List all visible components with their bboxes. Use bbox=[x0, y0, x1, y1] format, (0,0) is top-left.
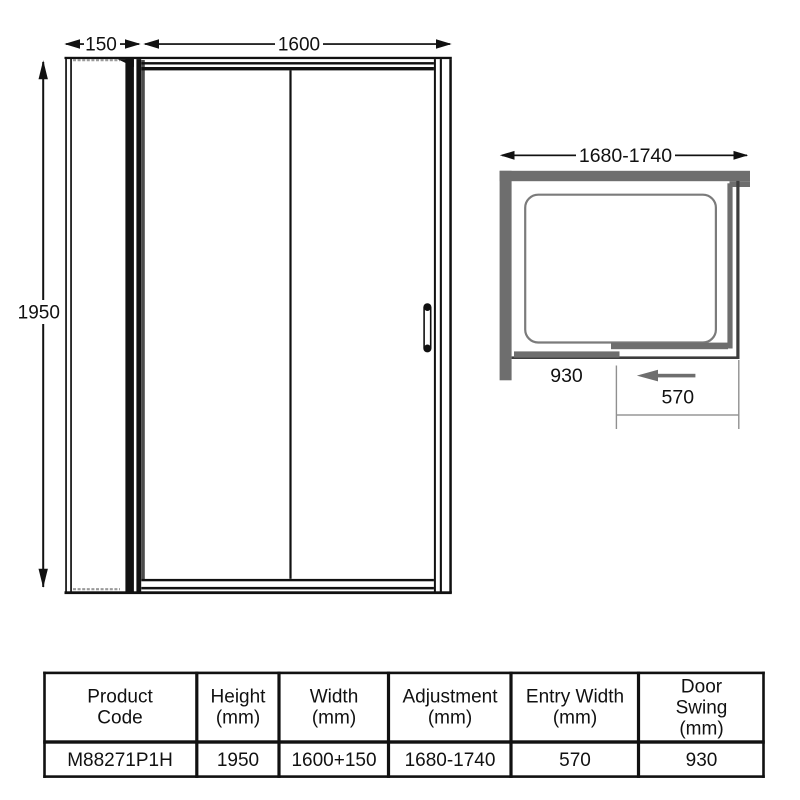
svg-text:Entry Width: Entry Width bbox=[526, 687, 624, 708]
svg-text:1600+150: 1600+150 bbox=[291, 750, 376, 771]
svg-text:Height: Height bbox=[211, 687, 267, 708]
svg-text:570: 570 bbox=[662, 387, 695, 409]
svg-text:1950: 1950 bbox=[217, 750, 259, 771]
svg-text:Adjustment: Adjustment bbox=[402, 687, 498, 708]
svg-text:(mm): (mm) bbox=[679, 719, 723, 740]
svg-text:(mm): (mm) bbox=[312, 708, 356, 729]
svg-text:1680-1740: 1680-1740 bbox=[405, 750, 496, 771]
svg-text:M88271P1H: M88271P1H bbox=[67, 750, 173, 771]
svg-text:1950: 1950 bbox=[18, 303, 60, 324]
svg-text:(mm): (mm) bbox=[216, 708, 260, 729]
svg-text:150: 150 bbox=[85, 35, 117, 56]
svg-text:1680-1740: 1680-1740 bbox=[579, 145, 672, 167]
svg-text:Door: Door bbox=[681, 677, 723, 698]
svg-text:Code: Code bbox=[97, 708, 142, 729]
svg-text:Width: Width bbox=[310, 687, 359, 708]
svg-text:930: 930 bbox=[550, 365, 583, 387]
svg-text:1600: 1600 bbox=[278, 35, 320, 56]
svg-text:(mm): (mm) bbox=[553, 708, 597, 729]
svg-text:Swing: Swing bbox=[676, 698, 728, 719]
svg-text:930: 930 bbox=[686, 750, 718, 771]
svg-text:570: 570 bbox=[559, 750, 591, 771]
svg-text:Product: Product bbox=[87, 687, 153, 708]
svg-text:(mm): (mm) bbox=[428, 708, 472, 729]
